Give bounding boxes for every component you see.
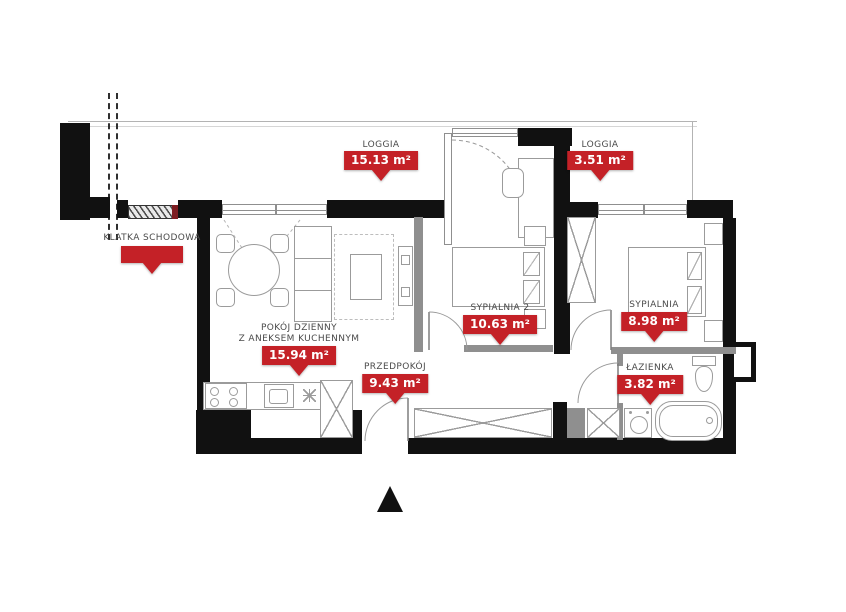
wall-top-right-corner	[687, 200, 733, 218]
label-living-room-line2: Z ANEKSEM KUCHENNYM	[239, 334, 360, 344]
marker-tail	[371, 169, 391, 181]
door-swing-bathroom	[578, 363, 618, 403]
sofa	[294, 226, 332, 322]
marker-bedroom-value: 8.98 m²	[621, 312, 687, 331]
glazing-bedroom2-nook	[452, 128, 518, 137]
dining-chair	[216, 288, 235, 307]
toilet-bowl	[695, 366, 713, 392]
marker-loggia-large-value: 15.13 m²	[344, 151, 418, 170]
label-bedroom2: SYPIALNIA 2	[471, 303, 530, 313]
label-bathroom: ŁAZIENKA	[626, 363, 674, 373]
stove	[205, 383, 247, 409]
marker-tail	[640, 393, 660, 405]
marker-loggia-small: 3.51 m²	[567, 151, 633, 181]
kitchen-sink	[264, 384, 294, 408]
burner	[210, 387, 219, 396]
partition-living-hallway	[414, 217, 423, 352]
washer-knob	[629, 411, 632, 414]
loggia-outline-right	[692, 121, 693, 202]
label-bedroom: SYPIALNIA	[629, 300, 679, 310]
marker-hallway-value: 9.43 m²	[362, 374, 428, 393]
marker-tail	[289, 364, 309, 376]
sofa-cushion-line	[295, 258, 331, 259]
label-hallway: PRZEDPOKÓJ	[364, 362, 426, 372]
nightstand	[704, 320, 723, 342]
dining-chair	[270, 288, 289, 307]
window-bedroom-loggia	[598, 204, 687, 215]
marker-stairwell	[121, 246, 183, 274]
wall-top-pier	[117, 200, 128, 218]
burner	[210, 398, 219, 407]
wardrobe-bedroom	[567, 217, 596, 303]
pillow	[523, 252, 540, 276]
sideboard-detail	[401, 287, 410, 297]
tv-sideboard	[398, 246, 413, 306]
label-stairwell: KLATKA SCHODOWA	[103, 233, 200, 243]
washing-machine	[624, 408, 652, 438]
coffee-table	[350, 254, 382, 300]
washer-knob	[646, 411, 649, 414]
pillow	[523, 280, 540, 304]
dining-chair	[270, 234, 289, 253]
door-swing-overlay	[0, 0, 846, 612]
marker-bathroom-value: 3.82 m²	[617, 375, 683, 394]
sink-basin	[269, 389, 288, 404]
marker-tail	[385, 392, 405, 404]
exterior-duct-niche	[734, 342, 756, 382]
stairwell-landing-hatch	[128, 205, 173, 219]
loggia-outline-top	[68, 121, 697, 122]
label-loggia-large: LOGGIA	[363, 140, 400, 150]
marker-living-room: 15.94 m²	[262, 346, 336, 376]
wall-top-mid	[327, 200, 444, 218]
dining-chair	[216, 234, 235, 253]
window-mullion	[643, 205, 645, 214]
marker-bedroom: 8.98 m²	[621, 312, 687, 342]
north-arrow	[377, 486, 403, 512]
sideboard-detail	[401, 255, 410, 265]
marker-tail	[142, 262, 162, 274]
pillow	[687, 252, 702, 280]
wardrobe-hallway	[414, 408, 552, 438]
marker-bedroom2: 10.63 m²	[463, 315, 537, 345]
wall-loggia-small-stub	[570, 202, 598, 218]
sofa-cushion-line	[295, 290, 331, 291]
window-mullion	[275, 205, 277, 214]
label-loggia-small: LOGGIA	[582, 140, 619, 150]
marker-tail	[490, 333, 510, 345]
floor-plan: KLATKA SCHODOWA LOGGIA LOGGIA POKÓJ DZIE…	[0, 0, 846, 612]
wall-stairwell-foot	[60, 197, 110, 218]
wall-bottom-left	[196, 438, 362, 454]
bed-bedroom2	[452, 247, 545, 307]
door-swing-bedroom2	[429, 312, 467, 350]
door-swing-bedroom	[571, 310, 611, 350]
marker-stairwell-value	[121, 246, 183, 263]
marker-living-room-value: 15.94 m²	[262, 346, 336, 365]
washer-drum	[630, 416, 648, 434]
bathtub	[655, 401, 722, 441]
desk-chair	[502, 168, 524, 198]
marker-loggia-small-value: 3.51 m²	[567, 151, 633, 170]
marker-tail	[644, 330, 664, 342]
wall-right	[723, 218, 736, 454]
window-living-loggia	[222, 204, 327, 215]
wall-hall-pier	[553, 402, 567, 454]
bathtub-drain	[706, 417, 713, 424]
burner	[229, 398, 238, 407]
marker-tail	[590, 169, 610, 181]
marker-bedroom2-value: 10.63 m²	[463, 315, 537, 334]
marker-bathroom: 3.82 m²	[617, 375, 683, 405]
pillow	[687, 286, 702, 314]
wardrobe-hallway-small	[587, 408, 620, 438]
nightstand	[704, 223, 723, 245]
label-living-room-line1: POKÓJ DZIENNY	[261, 323, 337, 333]
nightstand	[524, 226, 546, 246]
partition-bathroom-left-upper	[617, 354, 623, 366]
hob-symbol	[303, 389, 316, 402]
loggia-door-leaf	[444, 133, 452, 245]
loggia-outline-top-inner	[68, 126, 697, 127]
marker-loggia-large: 15.13 m²	[344, 151, 418, 181]
partition-bathroom-top	[611, 347, 736, 354]
toilet-tank	[692, 356, 716, 366]
burner	[229, 387, 238, 396]
hallway-pocket	[567, 408, 585, 438]
marker-hallway: 9.43 m²	[362, 374, 428, 404]
partition-bedroom2-hallway	[464, 345, 553, 352]
door-swing-entrance	[365, 398, 408, 441]
kitchen-tall-cabinet	[320, 380, 353, 438]
